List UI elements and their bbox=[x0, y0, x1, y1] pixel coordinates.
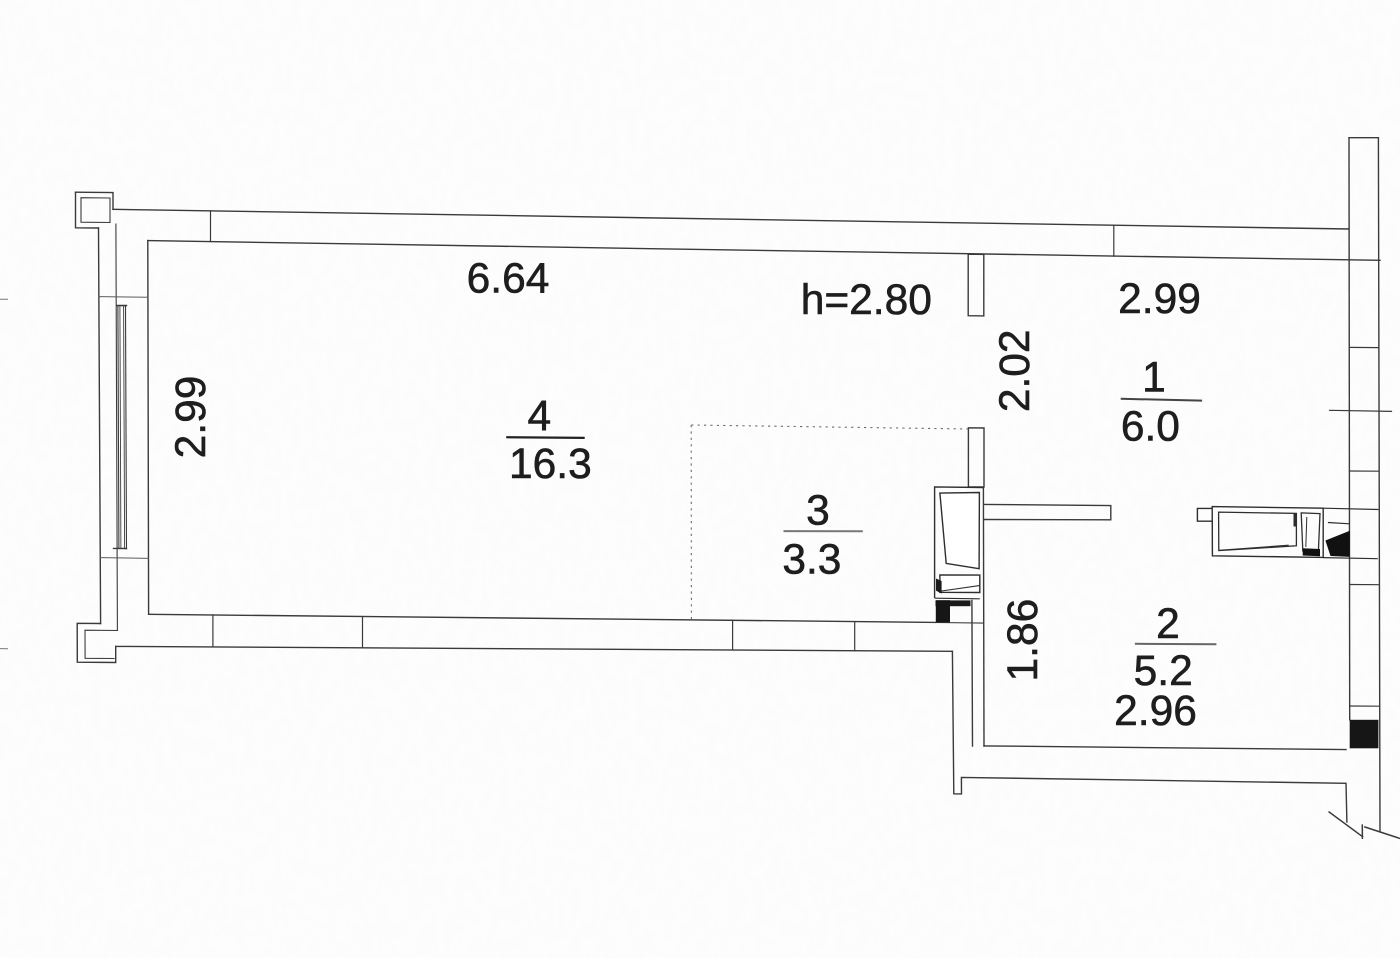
svg-text:2.96: 2.96 bbox=[1114, 688, 1197, 735]
svg-text:3.3: 3.3 bbox=[782, 537, 841, 584]
svg-text:6.64: 6.64 bbox=[467, 256, 550, 303]
svg-text:6.0: 6.0 bbox=[1121, 404, 1180, 451]
svg-text:4: 4 bbox=[527, 393, 551, 440]
svg-text:3: 3 bbox=[806, 488, 830, 535]
svg-text:2.99: 2.99 bbox=[1118, 276, 1201, 323]
svg-text:1: 1 bbox=[1142, 355, 1166, 402]
svg-text:16.3: 16.3 bbox=[509, 441, 592, 488]
svg-text:2: 2 bbox=[1156, 601, 1180, 648]
svg-text:2.02: 2.02 bbox=[992, 329, 1039, 412]
svg-text:2.99: 2.99 bbox=[168, 376, 215, 459]
svg-text:1.86: 1.86 bbox=[1000, 599, 1047, 682]
svg-text:h=2.80: h=2.80 bbox=[801, 277, 932, 324]
